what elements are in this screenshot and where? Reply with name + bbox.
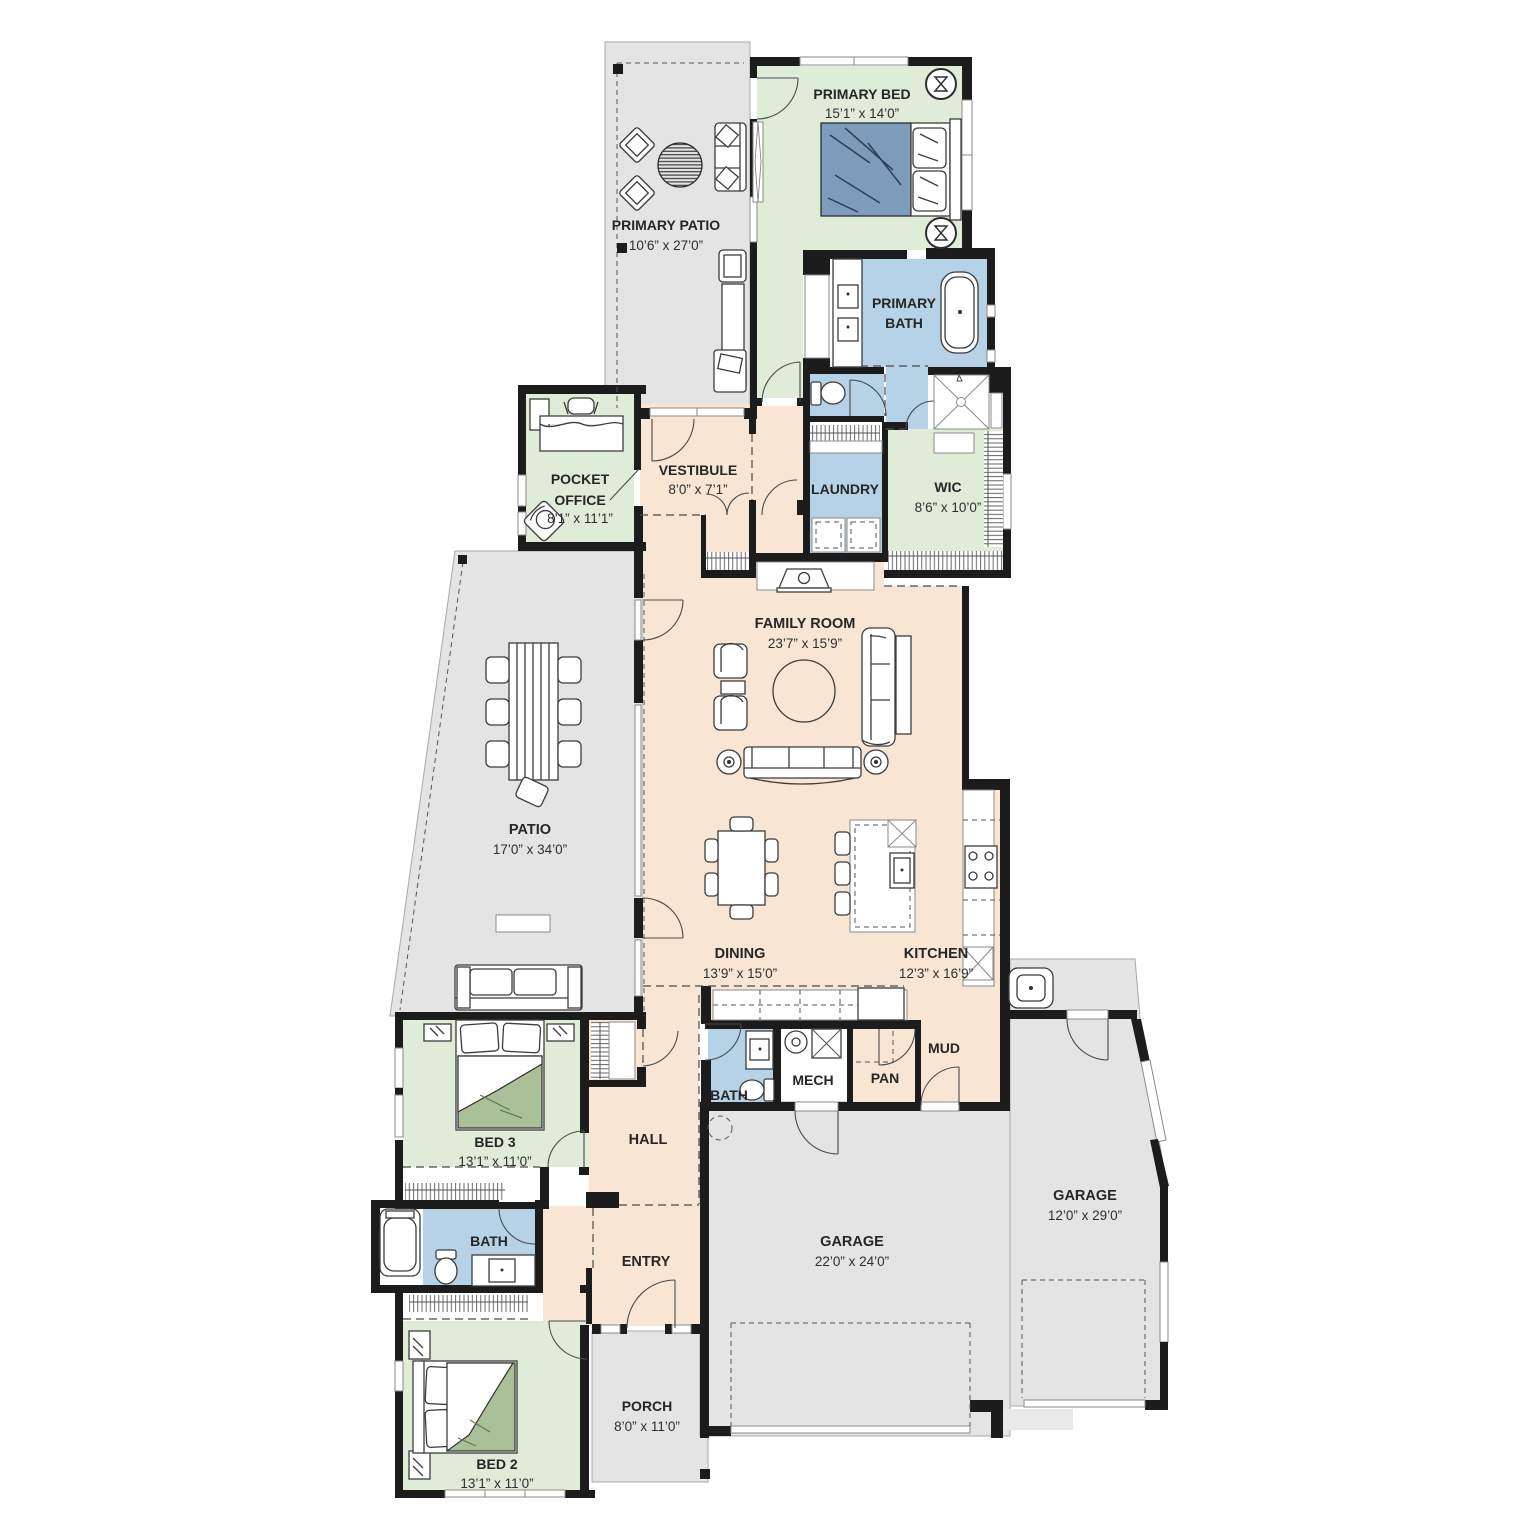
svg-text:BATH: BATH xyxy=(885,315,923,331)
svg-text:12’0” x 29’0”: 12’0” x 29’0” xyxy=(1048,1208,1122,1223)
svg-text:12’3” x 16’9”: 12’3” x 16’9” xyxy=(899,966,973,981)
svg-text:PRIMARY PATIO: PRIMARY PATIO xyxy=(612,217,720,233)
svg-text:POCKET: POCKET xyxy=(551,471,610,487)
svg-text:15’1” x 14’0”: 15’1” x 14’0” xyxy=(825,106,899,121)
svg-text:PRIMARY: PRIMARY xyxy=(872,295,937,311)
svg-text:22’0” x 24’0”: 22’0” x 24’0” xyxy=(815,1254,889,1269)
svg-text:ENTRY: ENTRY xyxy=(622,1254,671,1270)
svg-text:10’6” x 27’0”: 10’6” x 27’0” xyxy=(629,238,703,253)
svg-text:FAMILY ROOM: FAMILY ROOM xyxy=(755,616,856,632)
svg-text:LAUNDRY: LAUNDRY xyxy=(811,481,880,497)
svg-text:BED 3: BED 3 xyxy=(474,1134,515,1150)
svg-text:PATIO: PATIO xyxy=(509,822,551,838)
svg-text:MUD: MUD xyxy=(928,1040,960,1056)
svg-text:GARAGE: GARAGE xyxy=(820,1234,884,1250)
svg-text:8’0” x 11’0”: 8’0” x 11’0” xyxy=(614,1419,680,1434)
svg-text:13’1” x 11’0”: 13’1” x 11’0” xyxy=(460,1476,533,1491)
svg-text:OFFICE: OFFICE xyxy=(554,492,605,508)
svg-text:HALL: HALL xyxy=(629,1132,668,1148)
svg-text:MECH: MECH xyxy=(792,1072,833,1088)
svg-text:8’0” x 7’1”: 8’0” x 7’1” xyxy=(668,482,727,497)
svg-text:23’7” x 15’9”: 23’7” x 15’9” xyxy=(768,636,842,651)
svg-text:VESTIBULE: VESTIBULE xyxy=(659,462,738,478)
svg-text:8’1” x 11’1”: 8’1” x 11’1” xyxy=(547,511,613,526)
svg-text:KITCHEN: KITCHEN xyxy=(904,946,968,962)
svg-text:PRIMARY BED: PRIMARY BED xyxy=(813,86,910,102)
svg-text:PAN: PAN xyxy=(871,1070,900,1086)
svg-text:DINING: DINING xyxy=(715,946,766,962)
svg-text:PORCH: PORCH xyxy=(622,1398,673,1414)
svg-text:WIC: WIC xyxy=(934,479,961,495)
svg-text:8’6” x 10’0”: 8’6” x 10’0” xyxy=(915,500,982,515)
svg-text:BATH: BATH xyxy=(470,1233,508,1249)
svg-text:13’9” x 15’0”: 13’9” x 15’0” xyxy=(703,966,777,981)
svg-text:BED 2: BED 2 xyxy=(476,1456,517,1472)
svg-text:17’0” x 34’0”: 17’0” x 34’0” xyxy=(493,842,567,857)
svg-text:13’1” x 11’0”: 13’1” x 11’0” xyxy=(458,1154,531,1169)
svg-text:BATH: BATH xyxy=(710,1087,748,1103)
svg-text:GARAGE: GARAGE xyxy=(1053,1188,1117,1204)
